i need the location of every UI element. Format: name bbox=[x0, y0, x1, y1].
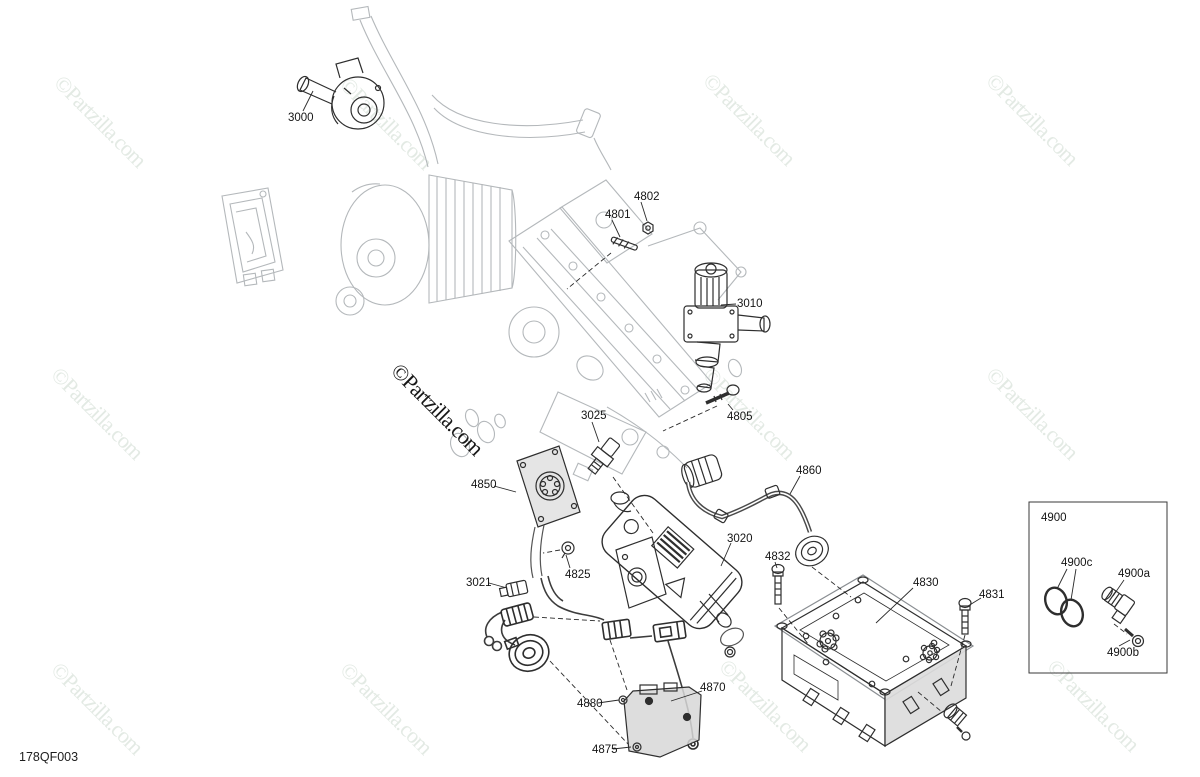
parts-diagram-page: ©Partzilla.com©Partzilla.com©Partzilla.c… bbox=[0, 0, 1200, 777]
part-label-4850: 4850 bbox=[471, 479, 497, 491]
part-label-4801: 4801 bbox=[605, 209, 631, 221]
part-label-4900b: 4900b bbox=[1107, 647, 1139, 659]
part-label-4832: 4832 bbox=[765, 551, 791, 563]
part-label-4830: 4830 bbox=[913, 577, 939, 589]
part-label-3000: 3000 bbox=[288, 112, 314, 124]
part-label-4900c: 4900c bbox=[1061, 557, 1092, 569]
part-label-4875: 4875 bbox=[592, 744, 618, 756]
part-label-4870: 4870 bbox=[700, 682, 726, 694]
part-label-4860: 4860 bbox=[796, 465, 822, 477]
part-label-4825: 4825 bbox=[565, 569, 591, 581]
part-label-3021: 3021 bbox=[466, 577, 492, 589]
part-label-4802: 4802 bbox=[634, 191, 660, 203]
part-label-4880: 4880 bbox=[577, 698, 603, 710]
part-label-4805: 4805 bbox=[727, 411, 753, 423]
diagram-code: 178QF003 bbox=[19, 750, 78, 764]
part-label-3025: 3025 bbox=[581, 410, 607, 422]
part-label-3020: 3020 bbox=[727, 533, 753, 545]
part-label-3010: 3010 bbox=[737, 298, 763, 310]
part-label-4900: 4900 bbox=[1041, 512, 1067, 524]
labels-layer: 3000480248013010480530254850486030204832… bbox=[0, 0, 1200, 777]
part-label-4900a: 4900a bbox=[1118, 568, 1150, 580]
part-label-4831: 4831 bbox=[979, 589, 1005, 601]
